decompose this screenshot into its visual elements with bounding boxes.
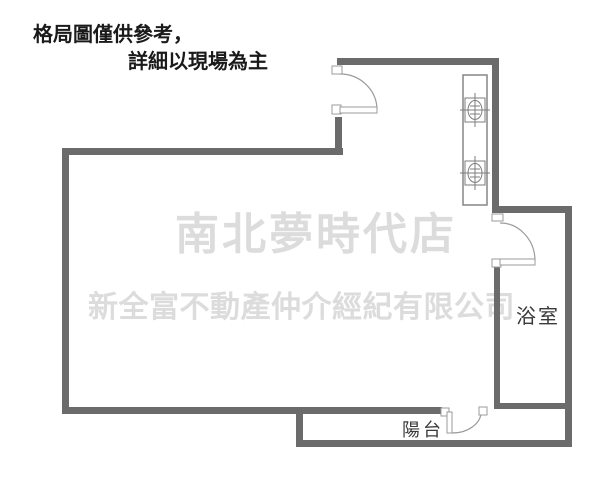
disclaimer-line1: 格局圖僅供參考， (33, 25, 193, 45)
stove-body (463, 75, 487, 205)
bathroom-door-jamb-top (492, 214, 503, 221)
entry-door-jamb-top (332, 66, 342, 74)
balcony-door (441, 407, 487, 433)
wall-left-vertical (62, 148, 69, 414)
disclaimer-line2: 詳細以現場為主 (128, 52, 268, 72)
entry-door-arc-icon (340, 74, 377, 110)
bathroom-door-jamb-bottom (492, 259, 501, 267)
balcony-door-jamb-left (441, 408, 449, 416)
wall-upper-left-horizontal (62, 148, 343, 155)
wall-bathroom-left-vertical (494, 267, 500, 409)
balcony-door-leaf-icon (447, 412, 452, 433)
balcony-label: 陽台 (402, 421, 444, 439)
entry-door (332, 66, 377, 114)
bathroom-label: 浴室 (516, 307, 560, 327)
wall-bottom-main-horizontal (62, 407, 442, 414)
gas-stove-icon (460, 75, 490, 205)
bathroom-door (492, 214, 535, 267)
wall-bathroom-bottom-horizontal (494, 403, 565, 409)
watermark-store-name: 南北夢時代店 (175, 213, 457, 257)
stove-burner-top-icon (460, 93, 490, 127)
wall-top-horizontal (337, 58, 499, 65)
watermark-company-name: 新全富不動產仲介經紀有限公司 (88, 293, 515, 323)
wall-entry-step-vertical (335, 117, 342, 155)
bathroom-door-leaf-icon (500, 259, 535, 265)
bathroom-door-arc-icon (500, 223, 535, 261)
wall-bathroom-top-horizontal (492, 206, 572, 213)
entry-door-jamb-bottom (332, 105, 341, 114)
floorplan-canvas: 格局圖僅供參考， 詳細以現場為主 南北夢時代店 新全富不動產仲介經紀有限公司 (0, 0, 616, 480)
wall-right-upper-vertical (492, 58, 499, 213)
wall-balcony-bottom-horizontal (296, 440, 572, 447)
balcony-door-arc-icon (452, 412, 481, 433)
wall-balcony-step-vertical (296, 414, 303, 441)
stove-burner-bottom-icon (460, 156, 490, 190)
balcony-door-jamb-right (479, 407, 487, 415)
entry-door-leaf-icon (340, 107, 377, 113)
wall-bathroom-right-vertical (565, 206, 572, 447)
